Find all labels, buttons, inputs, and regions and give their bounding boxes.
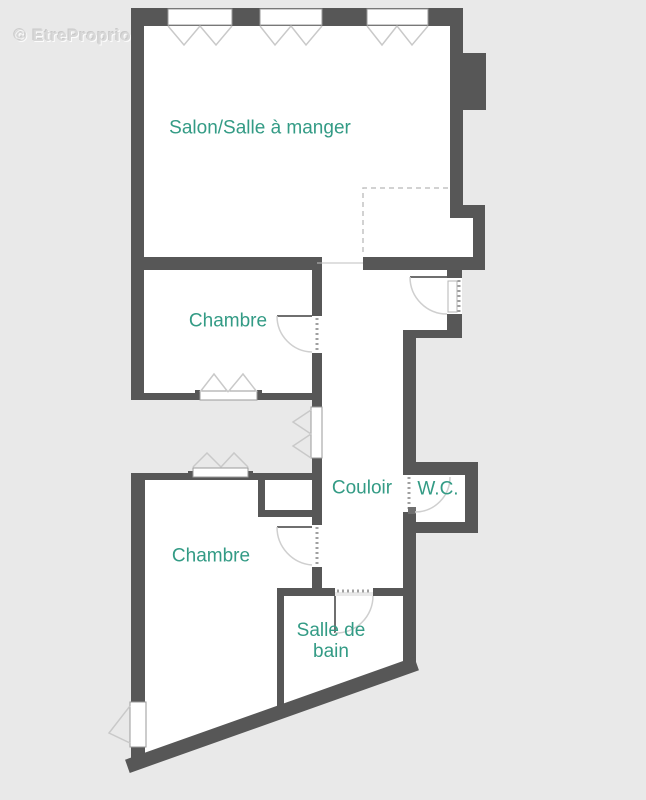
door-leaf-panel — [448, 281, 457, 312]
wall-salon-chambre1-left — [131, 257, 317, 270]
wall-chimney-bump — [463, 53, 486, 110]
wall-bain-top-left — [277, 588, 335, 596]
wall-salon-right — [450, 8, 463, 218]
window-casement-lines — [193, 453, 248, 467]
window-casement-lines — [109, 706, 130, 743]
wall-wc-bottom — [403, 522, 478, 533]
window-icon — [188, 453, 253, 480]
window-end-nub — [257, 390, 262, 400]
duct-cell-floor — [265, 480, 312, 510]
salon-nook-floor — [450, 218, 473, 257]
room-label-wc: W.C. — [417, 479, 458, 500]
window-end-nub — [195, 390, 200, 400]
room-label-couloir: Couloir — [332, 478, 392, 499]
wall-couloir-right-1 — [403, 330, 416, 475]
floorplan-image: © EtreProprio.com — [0, 0, 646, 800]
window-end-nub — [248, 471, 253, 480]
wall-couloir-left-1 — [312, 257, 322, 316]
couloir-floor — [322, 270, 403, 592]
window-end-nub — [188, 471, 193, 480]
window-pane — [130, 702, 146, 747]
door-leaf — [408, 507, 416, 514]
wall-duct-bottom — [258, 510, 318, 517]
room-label-chambre-1: Chambre — [189, 311, 267, 332]
window-icon — [293, 407, 322, 458]
wall-hall-right-top — [447, 270, 462, 278]
wall-salon-hall-right — [363, 257, 485, 270]
wall-left-upper — [131, 8, 144, 400]
room-label-salon: Salon/Salle à manger — [169, 118, 351, 139]
window-pane — [260, 9, 322, 25]
chambre1-floor — [144, 270, 312, 393]
wall-nook-right — [473, 205, 485, 270]
room-label-chambre-2: Chambre — [172, 546, 250, 567]
window-pane — [193, 468, 248, 477]
window-pane — [168, 9, 232, 25]
wall-bain-top-right — [373, 588, 416, 596]
window-casement-lines — [293, 410, 311, 458]
door-opening — [312, 525, 322, 567]
salon-floor — [144, 26, 450, 257]
window-pane — [311, 407, 322, 458]
room-label-salle-de-bain: Salle de bain — [281, 620, 381, 662]
wall-left-lower-1 — [131, 473, 145, 702]
window-icon — [109, 702, 146, 747]
window-pane — [367, 9, 428, 25]
wall-couloir-left-2 — [312, 353, 322, 408]
